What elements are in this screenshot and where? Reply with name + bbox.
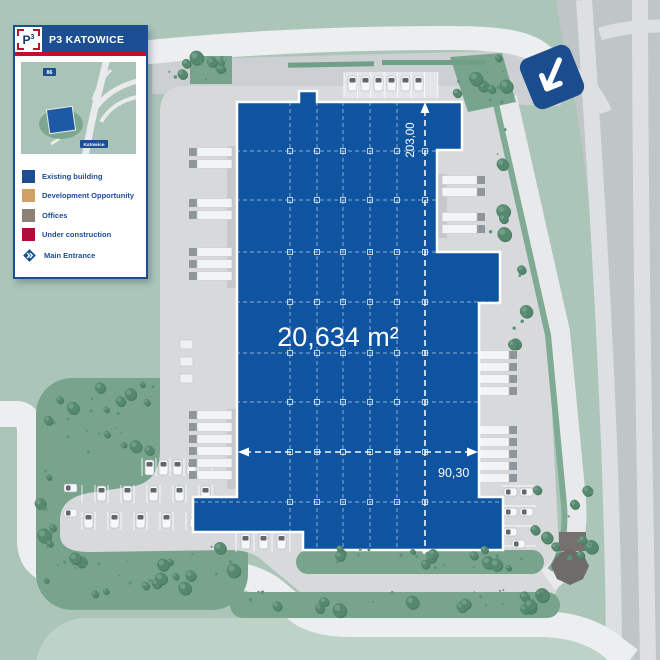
shrub [502,205,506,209]
shrub [495,554,499,558]
truck [189,411,232,420]
truck [442,225,485,234]
car [123,486,132,501]
legend-item-existing-building: Existing building [22,170,139,183]
green-strip [296,550,544,574]
car [159,460,168,475]
swatch-offices [22,209,35,222]
shrub [523,312,527,316]
parked-trailer [180,357,193,366]
shrub [205,78,207,80]
car [84,513,93,528]
legend-item-offices: Offices [22,209,139,222]
shrub [399,553,402,556]
car [64,509,77,517]
car [110,513,119,528]
truck [474,438,517,447]
inset-city-name: Katowice [83,142,104,148]
shrub [520,320,524,324]
shrub [117,412,120,415]
shrub [191,553,193,555]
shrub [86,430,88,432]
shrub [74,567,76,569]
green-median [382,60,486,65]
shrub [473,566,475,568]
car [520,488,533,496]
p3-logo: P3 [15,27,42,52]
legend-label: Under construction [42,230,111,239]
shrub [67,417,70,420]
legend-label: Development Opportunity [42,191,134,200]
shrub [211,546,213,548]
inset-map-wrap: 86 Katowice [15,56,146,159]
shrub [249,598,253,602]
car [361,76,370,91]
car [259,534,268,549]
shrub [489,230,492,233]
car [136,513,145,528]
park-title: P3 KATOWICE [42,27,146,52]
truck [189,459,232,468]
shrub [479,595,482,598]
shrub [499,590,501,592]
panel-header: P3 P3 KATOWICE [15,27,146,52]
truck [189,248,232,257]
shrub [87,450,90,453]
car [401,76,410,91]
car [175,486,184,501]
truck [189,471,232,480]
main-entrance-icon [22,248,37,263]
truck [442,176,485,185]
truck [474,375,517,384]
car [512,540,525,548]
shrub [63,560,66,563]
shrub [524,595,527,598]
legend-list: Existing building Development Opportunit… [15,159,146,277]
shrub [357,554,360,557]
shrub [200,62,203,65]
shrub [46,545,49,548]
shrub [590,491,593,494]
shrub [118,574,120,576]
shrub [500,100,503,103]
shrub [485,604,487,606]
shrub [504,128,507,131]
car [149,486,158,501]
shrub [229,560,232,563]
truck [189,423,232,432]
car [387,76,396,91]
shrub [497,86,500,89]
shrub [367,548,370,551]
car [520,508,533,516]
parked-trailer [180,374,193,383]
swatch-existing-building [22,170,35,183]
shrub [120,432,122,434]
shrub [556,554,559,557]
shrub [116,428,118,430]
shrub [359,548,362,551]
truck [189,160,232,169]
highway-lane [640,0,648,660]
truck [189,447,232,456]
shrub [44,508,47,511]
shrub [127,560,129,562]
shrub [588,543,591,546]
shrub [502,70,504,72]
truck [189,272,232,281]
shrub [191,570,194,573]
shrub [336,561,338,563]
truck [474,474,517,483]
shrub [121,445,124,448]
dim-horizontal-label: 90,30 [438,466,469,480]
car [173,460,182,475]
car [374,76,383,91]
shrub [91,397,94,400]
truck [442,213,485,222]
inset-building [46,106,75,133]
car [162,513,171,528]
swatch-under-construction [22,228,35,241]
shrub [415,555,418,558]
truck [474,387,517,396]
car [241,534,250,549]
shrub [557,542,560,545]
shrub [148,579,152,583]
shrub [51,531,54,534]
shrub [471,62,473,64]
shrub [497,153,499,155]
shrub [567,557,570,560]
shrub [261,591,265,595]
truck [474,462,517,471]
shrub [425,552,428,555]
truck [474,351,517,360]
legend-item-main-entrance: Main Entrance [22,248,139,263]
truck [474,363,517,372]
shrub [257,591,259,593]
shrub [41,508,44,511]
shrub [225,60,227,62]
shrub [457,80,460,83]
car [277,534,286,549]
truck [189,435,232,444]
car [504,488,517,496]
legend-label: Offices [42,211,67,220]
shrub [443,564,445,566]
shrub [434,566,437,569]
truck [189,148,232,157]
inset-bg [21,62,136,154]
shrub [462,609,464,611]
shrub [220,56,223,59]
site-plan-page: 203,00 90,30 20,634 m² P3 P3 KA [0,0,660,660]
shrub [315,606,318,609]
inset-road-number: 86 [46,70,52,76]
shrub [577,539,580,542]
shrub [391,591,394,594]
car [145,460,154,475]
building-area-label: 20,634 m² [277,322,399,352]
truck [474,450,517,459]
shrub [473,591,475,593]
truck [474,426,517,435]
shrub [168,71,170,73]
shrub [57,564,59,566]
car [504,508,517,516]
shrub [215,572,218,575]
truck [189,199,232,208]
dim-vertical-label: 203,00 [405,122,417,157]
shrub [513,327,516,330]
shrub [97,562,100,565]
shrub [487,71,489,73]
shrub [98,432,100,434]
shrub [174,75,178,79]
legend-item-under-construction: Under construction [22,228,139,241]
truck [189,260,232,269]
swatch-development-opportunity [22,189,35,202]
shrub [207,62,210,65]
shrub [53,422,56,425]
car [64,484,77,492]
inset-location-map: 86 Katowice [21,62,136,154]
shrub [67,435,70,438]
car [348,76,357,91]
legend-label: Main Entrance [44,251,95,260]
legend-label: Existing building [42,172,102,181]
shrub [568,515,570,517]
car [504,528,517,536]
legend-item-development-opportunity: Development Opportunity [22,189,139,202]
truck [189,211,232,220]
shrub [85,565,88,568]
shrub [44,470,47,473]
shrub [520,558,523,561]
car [414,76,423,91]
parked-trailer [180,340,193,349]
legend-panel: P3 P3 KATOWICE 86 Katowice Existing buil… [13,25,148,279]
shrub [129,581,132,584]
shrub [501,603,503,605]
shrub [489,99,492,102]
shrub [502,589,504,591]
car [97,486,106,501]
shrub [89,409,92,412]
shrub [152,385,155,388]
shrub [372,601,374,603]
shrub [429,556,431,558]
truck [442,188,485,197]
shrub [518,274,521,277]
